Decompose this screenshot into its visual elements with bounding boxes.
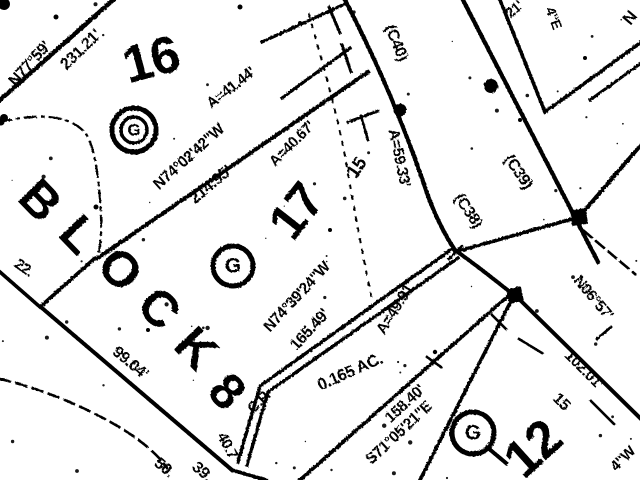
tick-mark — [597, 327, 611, 339]
block-letter-c: C — [127, 276, 192, 340]
noise-speck — [382, 424, 386, 428]
noise-speck — [330, 469, 332, 471]
noise-speck — [326, 261, 328, 263]
noise-speck — [284, 206, 285, 207]
frag-50: 50. — [151, 455, 178, 480]
noise-blob — [328, 228, 332, 232]
noise-speck — [352, 10, 355, 13]
curve-c40: (C40) — [381, 22, 411, 63]
noise-speck — [65, 320, 68, 323]
area-0165-ac: 0.165 AC. — [315, 350, 386, 395]
noise-speck — [471, 147, 474, 150]
noise-speck — [45, 336, 49, 340]
noise-speck — [265, 408, 266, 409]
noise-blob — [54, 15, 59, 20]
noise-speck — [206, 83, 209, 86]
noise-speck — [611, 415, 614, 418]
monument-square — [506, 286, 524, 304]
noise-speck — [535, 309, 539, 313]
noise-speck — [452, 41, 453, 42]
frag-39: 39. — [189, 459, 216, 480]
frag-22: 22. — [11, 255, 37, 280]
g-marker-lot12: G — [452, 412, 506, 463]
noise-speck — [630, 438, 632, 440]
noise-blob — [518, 118, 522, 122]
noise-speck — [293, 466, 296, 469]
g-marker-lot17: G — [213, 246, 253, 286]
noise-speck — [191, 326, 193, 328]
g-symbol-letter: G — [465, 422, 481, 445]
tick-mark — [329, 7, 340, 33]
lot-line-16-17 — [98, 72, 368, 258]
noise-speck — [75, 469, 79, 473]
lot-number-17: 17 — [257, 173, 334, 250]
frag-n: N — [619, 7, 640, 28]
noise-speck — [620, 19, 622, 21]
noise-speck — [133, 362, 136, 365]
noise-speck — [468, 76, 471, 79]
dist-99-04: 99.04' — [109, 343, 151, 382]
noise-speck — [543, 219, 545, 221]
noise-speck — [313, 182, 316, 185]
noise-speck — [591, 35, 594, 38]
plat-map-canvas: GGG N77°59'231.21'A=41.44'N74°02'42"W214… — [0, 0, 640, 480]
monument-dot — [484, 79, 498, 93]
noise-speck — [265, 238, 266, 239]
noise-speck — [102, 384, 104, 386]
noise-speck — [343, 197, 347, 201]
arc-59-33: A=59.33' — [385, 128, 414, 189]
lot-number-12: 12 — [493, 409, 573, 480]
dist-165-49: 165.49' — [287, 306, 333, 354]
cross-line-ne — [579, 146, 640, 217]
frag-4w: 4"W — [607, 442, 640, 475]
plat-map-scan: GGG N77°59'231.21'A=41.44'N74°02'42"W214… — [0, 0, 640, 480]
lot-line-topright-c — [590, 64, 640, 100]
noise-speck — [554, 189, 557, 192]
noise-blob — [238, 5, 243, 10]
noise-speck — [227, 244, 229, 246]
lot-line-topright-a — [500, 0, 545, 112]
noise-speck — [579, 187, 581, 189]
noise-speck — [407, 93, 410, 96]
dist-102-01: 102.01' — [561, 347, 607, 393]
noise-speck — [118, 327, 121, 330]
noise-speck — [12, 180, 13, 181]
noise-speck — [173, 138, 175, 140]
noise-speck — [392, 471, 396, 475]
noise-speck — [495, 109, 499, 113]
noise-speck — [408, 440, 412, 444]
noise-speck — [149, 202, 150, 203]
noise-speck — [323, 296, 326, 299]
tick-15-upper: 15 — [343, 153, 372, 182]
noise-speck — [193, 380, 194, 381]
monument-dot — [394, 104, 407, 117]
block-letter-b: B — [8, 168, 73, 232]
dash-segment — [519, 339, 542, 353]
map-linework: GGG N77°59'231.21'A=41.44'N74°02'42"W214… — [0, 0, 640, 480]
noise-speck — [571, 275, 575, 279]
noise-blob — [94, 205, 99, 210]
dash-segment — [591, 401, 614, 424]
noise-speck — [599, 434, 602, 437]
curve-c38: (C38) — [450, 191, 485, 232]
dist-214-95: 214.95' — [187, 163, 236, 208]
double-line-outer — [238, 249, 452, 462]
block-letter-o: O — [87, 236, 154, 302]
noise-speck — [11, 440, 14, 443]
noise-speck — [446, 477, 448, 479]
noise-speck — [42, 175, 46, 179]
noise-blob — [298, 21, 302, 25]
noise-speck — [326, 255, 328, 257]
noise-speck — [94, 2, 98, 6]
noise-speck — [585, 116, 587, 118]
g-symbol-letter: G — [225, 255, 241, 278]
noise-speck — [399, 372, 401, 374]
tick-mark — [361, 116, 368, 140]
noise-speck — [367, 151, 370, 154]
noise-speck — [617, 143, 619, 145]
noise-speck — [622, 123, 624, 125]
block-letter-8: 8 — [198, 362, 257, 420]
noise-speck — [594, 342, 597, 345]
noise-speck — [49, 157, 53, 161]
dist-231-21: 231.21' — [57, 27, 104, 73]
bearing-n06-57: N06°57' — [570, 273, 616, 324]
noise-blob — [146, 328, 150, 332]
boundary-corner-south — [232, 470, 266, 480]
g-symbol-letter: G — [127, 121, 140, 140]
noise-speck — [305, 441, 306, 442]
noise-blob — [433, 350, 437, 354]
noise-speck — [557, 90, 559, 92]
bearing-n77-59: N77°59' — [6, 38, 55, 89]
noise-blob — [583, 56, 587, 60]
lot-number-16: 16 — [117, 25, 186, 95]
noise-blob — [0, 0, 10, 10]
noise-speck — [526, 94, 530, 98]
noise-speck — [275, 462, 277, 464]
g-marker-lot16: G — [112, 108, 156, 152]
noise-speck — [142, 238, 145, 241]
tick-15-lower: 15 — [549, 390, 573, 414]
monument-square — [570, 208, 588, 226]
noise-speck — [102, 34, 104, 36]
noise-speck — [202, 327, 205, 330]
noise-speck — [146, 144, 148, 146]
noise-speck — [2, 340, 4, 342]
noise-speck — [81, 260, 83, 262]
curve-c39: (C39) — [500, 152, 536, 193]
noise-speck — [165, 302, 169, 306]
frag-4e: 4"E — [543, 5, 566, 32]
block-letter-k: K — [164, 316, 229, 381]
noise-speck — [397, 361, 399, 363]
noise-speck — [403, 364, 406, 367]
arc-41-44: A=41.44' — [203, 64, 258, 112]
noise-blob — [0, 114, 8, 122]
lot-line-topright-b — [545, 43, 640, 112]
noise-speck — [194, 365, 198, 369]
noise-speck — [205, 326, 209, 330]
noise-speck — [471, 286, 472, 287]
street-curve-to-corner — [455, 250, 510, 292]
noise-speck — [635, 260, 637, 262]
